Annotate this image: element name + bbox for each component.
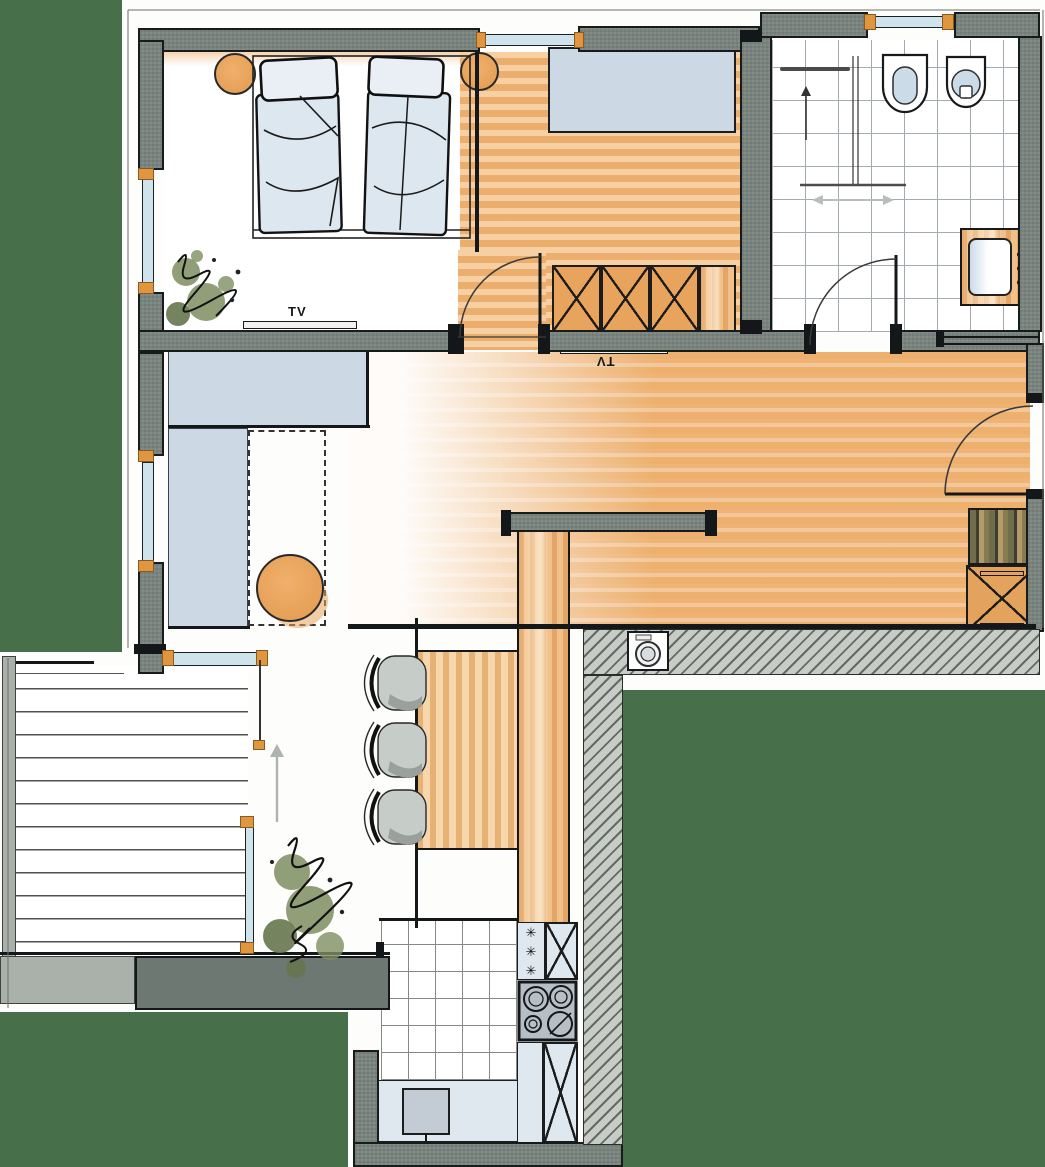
bedroom-plant <box>166 250 240 326</box>
floor-plan: TV TV ✳ ✳ ✳ <box>0 0 1045 1167</box>
bar-stool <box>365 655 427 711</box>
cooktop <box>519 982 576 1040</box>
bar-stool <box>365 789 427 845</box>
toilet <box>883 55 927 112</box>
entrance-door-swing <box>945 406 1033 494</box>
washing-machine <box>628 632 668 670</box>
shower-entry-arrow-icon <box>801 86 811 140</box>
double-bed <box>253 56 470 238</box>
sketch-overlay <box>0 0 1045 1167</box>
terrace-plant <box>263 838 352 978</box>
bidet <box>947 57 985 107</box>
drawing-frame-lines <box>8 10 1043 1008</box>
sliding-direction-arrow-icon <box>812 195 894 205</box>
bedroom-door-swing <box>458 253 546 337</box>
bar-stool <box>365 722 427 778</box>
terrace-entry-arrow-icon <box>270 744 284 822</box>
bathroom-door-swing <box>810 255 896 345</box>
